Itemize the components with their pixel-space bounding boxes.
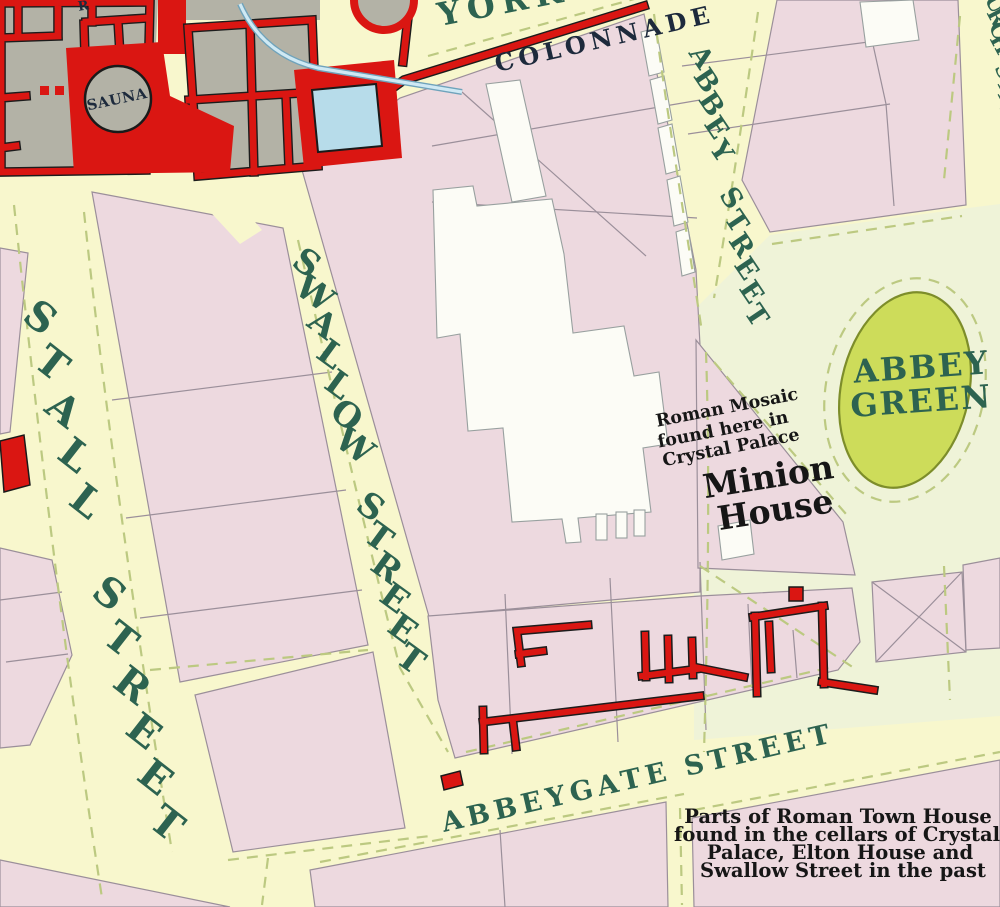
map-canvas: YORK COLONNADE SAUNA R ABBEYGATE STREET … xyxy=(0,0,1000,907)
roman-pool xyxy=(312,84,382,152)
white-northeast-building xyxy=(860,0,919,47)
edge-fragment-label: R xyxy=(77,0,90,15)
city-map: YORK COLONNADE SAUNA R ABBEYGATE STREET … xyxy=(0,0,1000,907)
white-tooth-3 xyxy=(634,510,645,536)
white-tooth-2 xyxy=(616,512,627,538)
wall-fragment-square xyxy=(789,587,803,601)
white-tooth-1 xyxy=(596,514,607,540)
circular-bath xyxy=(354,0,414,30)
block-east-sliver xyxy=(963,558,1000,650)
block-northeast xyxy=(742,0,966,232)
caption-line-4: Swallow Street in the past xyxy=(700,859,986,882)
wall-fragment-stall-street xyxy=(0,435,30,492)
